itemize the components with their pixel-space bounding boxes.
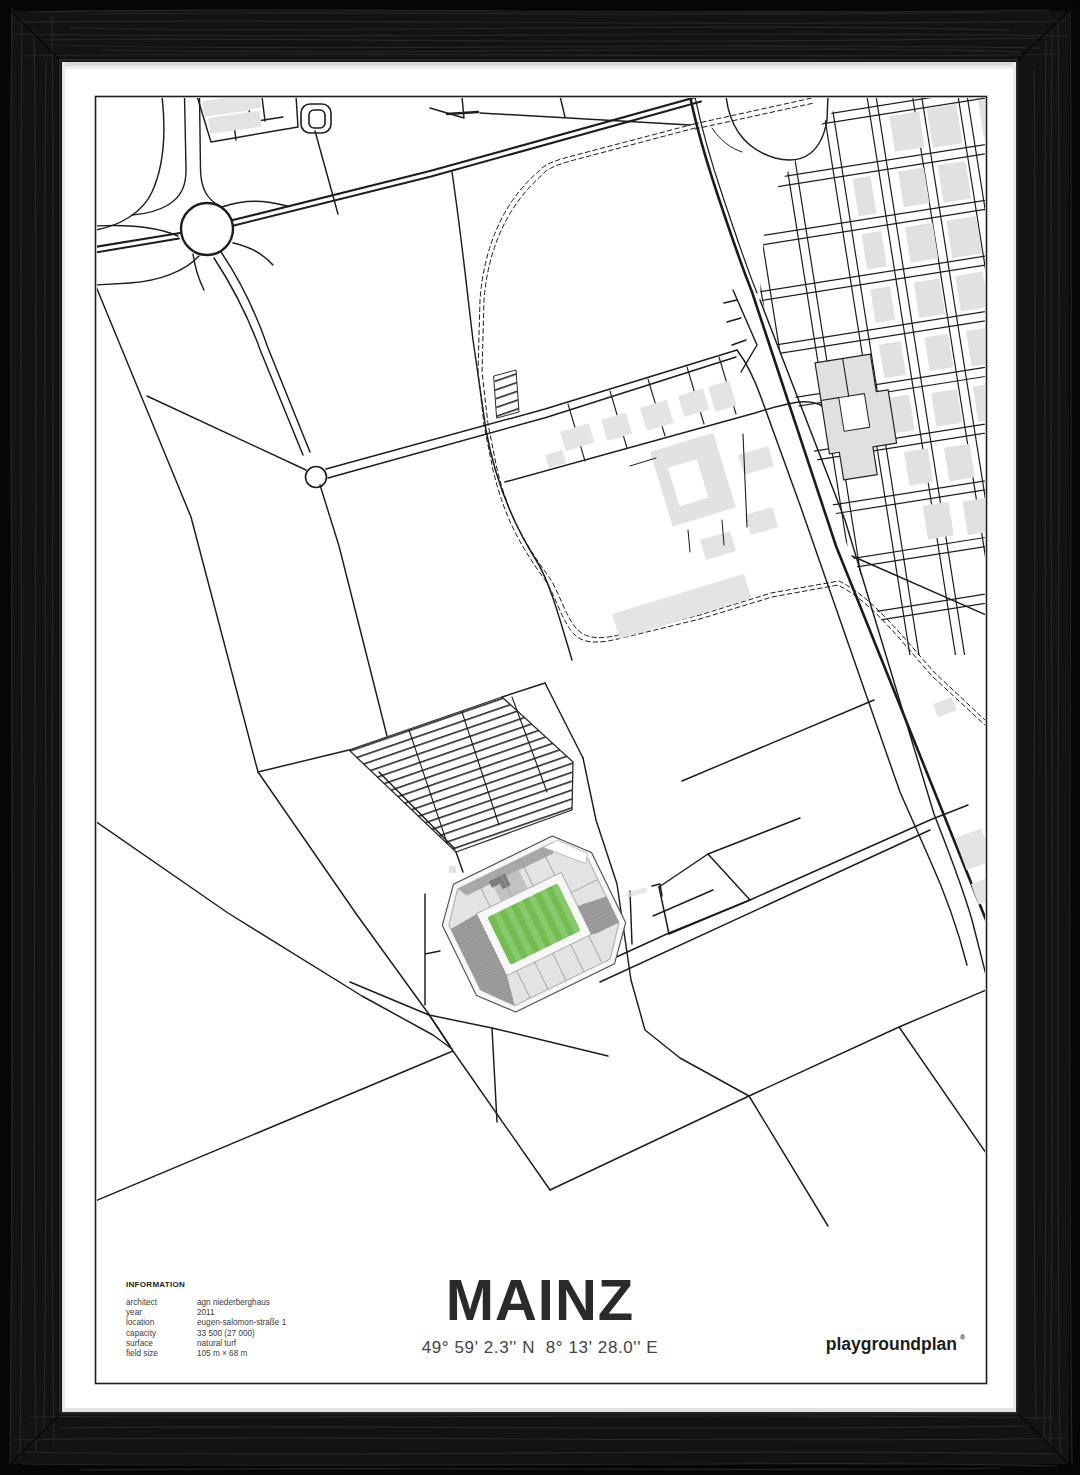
svg-text:2011: 2011 (197, 1308, 215, 1317)
svg-text:®: ® (960, 1334, 966, 1341)
svg-text:MAINZ: MAINZ (446, 1267, 635, 1332)
svg-text:playgroundplan: playgroundplan (826, 1334, 957, 1354)
svg-text:surface: surface (126, 1339, 153, 1348)
svg-text:natural turf: natural turf (197, 1339, 237, 1348)
svg-text:year: year (126, 1308, 142, 1317)
svg-text:33 500 (27 000): 33 500 (27 000) (197, 1329, 255, 1338)
svg-text:105 m × 68 m: 105 m × 68 m (197, 1349, 247, 1358)
svg-text:eugen-salomon-straße 1: eugen-salomon-straße 1 (197, 1318, 287, 1327)
svg-text:INFORMATION: INFORMATION (126, 1280, 185, 1289)
svg-text:field size: field size (126, 1349, 158, 1358)
svg-text:location: location (126, 1318, 155, 1327)
svg-text:capacity: capacity (126, 1329, 157, 1338)
svg-text:agn niederberghaus: agn niederberghaus (197, 1298, 270, 1307)
svg-text:architect: architect (126, 1298, 158, 1307)
svg-text:49° 59' 2.3'' N 8° 13' 28.0'': 49° 59' 2.3'' N 8° 13' 28.0'' E (422, 1338, 659, 1357)
